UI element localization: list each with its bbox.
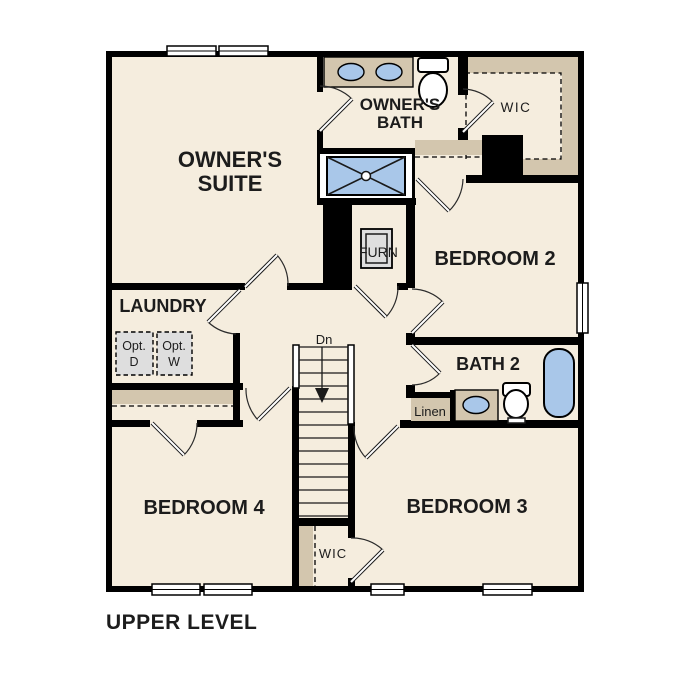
- stairs-dn-label: Dn: [316, 332, 333, 347]
- opt-w-label: Opt.: [162, 339, 186, 353]
- wic-top-label: WIC: [501, 100, 532, 115]
- owners-bath-vanity-icon: [324, 57, 413, 87]
- sink-icon: [463, 397, 489, 414]
- bath2-vanity-icon: [455, 390, 498, 421]
- owners-bath-label: OWNER'S: [360, 95, 441, 114]
- furnace-label: FURN: [359, 244, 398, 260]
- shower-drain-icon: [362, 172, 371, 181]
- opt-d-label-2: D: [129, 355, 138, 369]
- wic-bottom-shelf: [299, 526, 315, 586]
- floorplan-upper-level: OWNER'S SUITE OWNER'S BATH WIC BEDROOM 2…: [0, 0, 687, 687]
- bedroom2-closet-shelf: [415, 140, 482, 157]
- opt-d-label: Opt.: [122, 339, 146, 353]
- opt-w-label-2: W: [168, 355, 180, 369]
- laundry-label: LAUNDRY: [119, 296, 206, 316]
- wic-bottom-label: WIC: [319, 546, 347, 561]
- stair-rail: [348, 345, 354, 424]
- bedroom3-label: BEDROOM 3: [406, 496, 527, 518]
- plan-title: UPPER LEVEL: [106, 611, 257, 634]
- bath2-label: BATH 2: [456, 354, 520, 374]
- owners-bath-label-2: BATH: [377, 113, 423, 132]
- linen-label: Linen: [414, 404, 446, 419]
- bath2-tub-icon: [544, 349, 574, 417]
- shower-icon: [320, 154, 412, 198]
- owners-suite-label-2: SUITE: [198, 171, 263, 196]
- stair-rail: [293, 345, 299, 388]
- sink-icon: [376, 64, 402, 81]
- bedroom4-closet-shelf: [112, 390, 233, 406]
- bedroom2-label: BEDROOM 2: [434, 248, 555, 270]
- bedroom4-label: BEDROOM 4: [143, 497, 265, 519]
- floorplan-drawing: OWNER'S SUITE OWNER'S BATH WIC BEDROOM 2…: [0, 0, 687, 687]
- owners-suite-label: OWNER'S: [178, 147, 282, 172]
- sink-icon: [338, 64, 364, 81]
